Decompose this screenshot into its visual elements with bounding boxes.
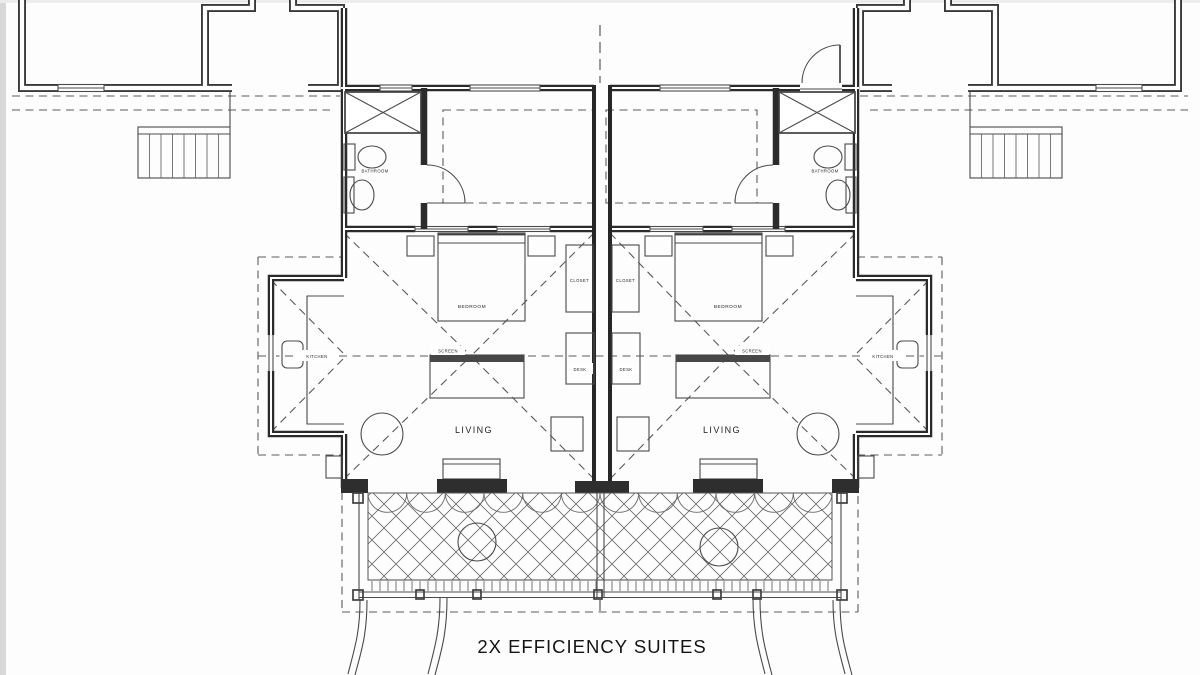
right-closet-desk	[612, 245, 649, 451]
room-labels: BATHROOM BATHROOM BEDROOM BEDROOM CLOSET…	[306, 169, 893, 436]
entry-door-swing	[802, 45, 840, 83]
left-closet-label: CLOSET	[570, 278, 589, 283]
left-neighbor-building	[22, 0, 341, 178]
party-wall	[594, 85, 610, 490]
left-living-label: LIVING	[455, 425, 493, 435]
side-table	[617, 417, 649, 451]
left-bathroom-label: BATHROOM	[361, 169, 388, 174]
toilet-fixture	[344, 177, 374, 213]
right-stairs	[970, 92, 1062, 178]
left-living	[361, 355, 524, 479]
nightstand	[528, 236, 555, 256]
right-desk-label: DESK	[619, 367, 632, 372]
side-table	[551, 417, 583, 451]
left-closet-desk	[551, 245, 594, 451]
round-chair	[361, 413, 403, 455]
porch-railing	[359, 592, 841, 598]
toilet-fixture	[826, 177, 856, 213]
bench	[443, 459, 500, 479]
desk-box	[566, 333, 594, 384]
floor-plan-page: BATHROOM BATHROOM BEDROOM BEDROOM CLOSET…	[0, 0, 1200, 675]
bottom-wall-piers	[341, 479, 859, 493]
deck-hatch	[368, 493, 832, 580]
right-living-label: LIVING	[703, 425, 741, 435]
right-living	[676, 355, 839, 479]
right-screen-label: SCREEN	[742, 349, 762, 354]
left-screen-label: SCREEN	[438, 349, 458, 354]
right-bathroom	[735, 92, 856, 213]
round-chair	[797, 413, 839, 455]
left-kitchen-label: KITCHEN	[306, 354, 327, 359]
bench	[700, 459, 757, 479]
nightstand	[645, 236, 672, 256]
left-stairs	[138, 92, 230, 178]
nightstand	[407, 236, 434, 256]
nightstand	[766, 236, 793, 256]
right-neighbor-building	[860, 0, 1178, 178]
bathroom-door-swing	[427, 165, 465, 203]
left-desk-label: DESK	[573, 367, 586, 372]
unit-left	[266, 92, 594, 479]
right-bedroom-label: BEDROOM	[714, 304, 742, 310]
right-kitchen-label: KITCHEN	[872, 354, 893, 359]
right-bathroom-label: BATHROOM	[811, 169, 838, 174]
floor-plan-drawing: BATHROOM BATHROOM BEDROOM BEDROOM CLOSET…	[0, 0, 1200, 675]
desk-box	[612, 333, 640, 384]
label-backgrounds	[296, 346, 904, 374]
sink-fixture	[814, 144, 856, 170]
right-closet-label: CLOSET	[616, 278, 635, 283]
bathroom-door-swing	[735, 165, 773, 203]
sink-fixture	[344, 144, 386, 170]
plan-title: 2X EFFICIENCY SUITES	[477, 636, 706, 657]
left-bedroom-label: BEDROOM	[458, 304, 486, 310]
